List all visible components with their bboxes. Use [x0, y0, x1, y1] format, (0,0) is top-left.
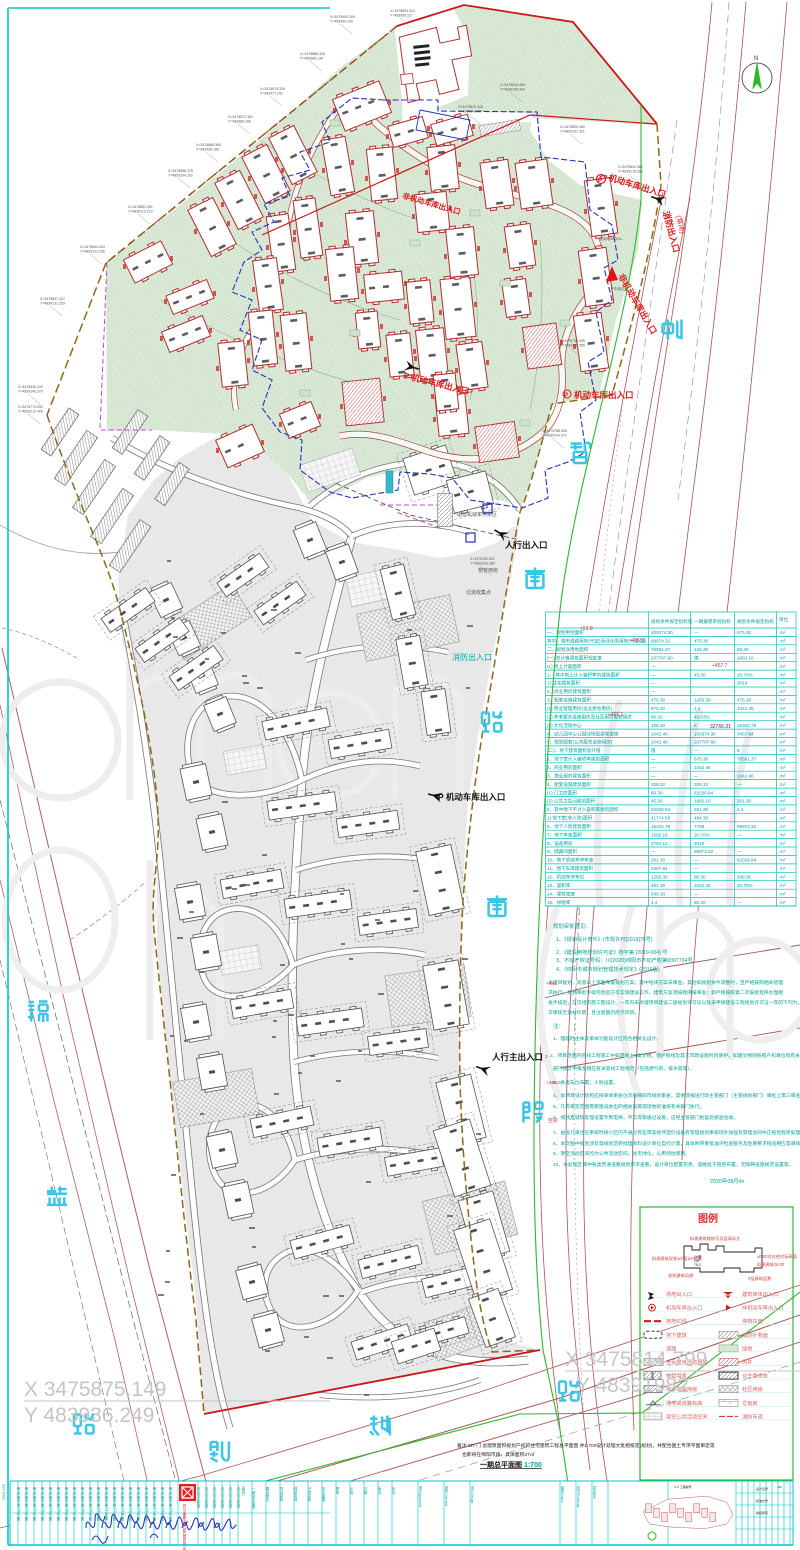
- svg-text:+491.1: +491.1: [608, 712, 624, 718]
- svg-text:(3) 文化活动中心: (3) 文化活动中心: [547, 722, 582, 729]
- svg-text:m²: m²: [780, 714, 786, 719]
- svg-text:4、配套设施建筑面积: 4、配套设施建筑面积: [547, 781, 591, 788]
- svg-text:11、地下车库建筑面积: 11、地下车库建筑面积: [547, 865, 594, 872]
- svg-text:A27+001: A27+001: [2, 1484, 7, 1501]
- svg-text:设计 Design: 设计 Design: [470, 1485, 474, 1504]
- svg-text:物管用房: 物管用房: [478, 567, 498, 574]
- svg-text:—: —: [651, 773, 656, 778]
- svg-text:—: —: [651, 672, 656, 677]
- svg-text:1265.39: 1265.39: [651, 875, 668, 880]
- svg-text:1042.46: 1042.46: [651, 740, 668, 745]
- svg-text:Y=4839203.389: Y=4839203.389: [470, 562, 495, 566]
- svg-text:审定核字第19号图: 审定核字第19号图: [168, 1486, 173, 1521]
- svg-text:图例: 图例: [698, 1212, 718, 1225]
- svg-text:80.30: 80.30: [694, 900, 706, 905]
- svg-text:注：: 注：: [553, 1022, 564, 1030]
- svg-text:审定核字第02号图: 审定核字第02号图: [32, 1486, 37, 1521]
- svg-text:m²: m²: [780, 689, 786, 694]
- svg-text:—: —: [737, 832, 742, 837]
- svg-text:Y=483986.168: Y=483986.168: [228, 120, 251, 124]
- svg-text:1、理临时主体及单体功能设计应符合相关化设计。: 1、理临时主体及单体功能设计应符合相关化设计。: [553, 1035, 661, 1042]
- svg-text:326.32: 326.32: [694, 782, 708, 787]
- svg-text:Y=4839158.304: Y=4839158.304: [500, 88, 525, 92]
- svg-text:审核 Checked: 审核 Checked: [444, 1485, 448, 1506]
- svg-text:m²: m²: [780, 647, 786, 652]
- svg-text:1042.46: 1042.46: [694, 883, 711, 888]
- svg-text:1.4: 1.4: [737, 807, 744, 812]
- svg-text:m²: m²: [780, 773, 786, 778]
- svg-text:一期总平面图 1:700: 一期总平面图 1:700: [480, 1460, 542, 1469]
- svg-text:m²: m²: [780, 757, 786, 762]
- svg-text:X=3475886.326: X=3475886.326: [300, 52, 325, 56]
- svg-text:审定核字第00号图: 审定核字第00号图: [16, 1486, 21, 1521]
- svg-text:一期报建审批指标: 一期报建审批指标: [694, 618, 731, 625]
- svg-text:用地红线: 用地红线: [666, 1317, 687, 1325]
- svg-text:m²: m²: [780, 849, 786, 854]
- svg-text:Y 48391982: Y 48391982: [576, 1374, 689, 1397]
- svg-text:项目负责: 项目负责: [592, 1486, 596, 1500]
- svg-text:比例: 比例: [349, 1486, 354, 1495]
- svg-text:—: —: [694, 891, 699, 896]
- svg-text:X=3475816.456: X=3475816.456: [500, 83, 525, 87]
- svg-text:m²: m²: [780, 807, 786, 812]
- svg-text:Y=483977.151: Y=483977.151: [260, 92, 283, 96]
- svg-text:7、地下车库面积: 7、地下车库面积: [547, 831, 582, 838]
- svg-text:Y=4839104.202: Y=4839104.202: [168, 174, 193, 178]
- svg-text:Y=4839176.338: Y=4839176.338: [618, 170, 643, 174]
- svg-text:Y=4839212.406: Y=4839212.406: [18, 410, 43, 414]
- svg-text:拟建建筑26.00: 拟建建筑26.00: [757, 1261, 785, 1268]
- svg-text:100374.30: 100374.30: [651, 630, 673, 635]
- svg-text:15、绿地率: 15、绿地率: [547, 899, 571, 906]
- svg-text:X=3475837.417: X=3475837.417: [40, 297, 65, 301]
- svg-text:5、凡有审定范围需要建设进出的相关设施或场地标准按有关部门执: 5、凡有审定范围需要建设进出的相关设施或场地标准按有关部门执行。: [553, 1103, 704, 1110]
- svg-text:1682.10: 1682.10: [651, 832, 668, 837]
- svg-text:875.30: 875.30: [737, 630, 751, 635]
- svg-text:值: 值: [694, 655, 699, 662]
- svg-text:62026.94: 62026.94: [651, 807, 671, 812]
- svg-text:1.4: 1.4: [651, 900, 658, 905]
- svg-text:空间: 空间: [548, 1117, 558, 1124]
- svg-text:4、《绵阳市城市规划管理技术规定》(2016版): 4、《绵阳市城市规划管理技术规定》(2016版): [556, 965, 660, 973]
- svg-text:—: —: [651, 757, 656, 762]
- svg-text:1042.46: 1042.46: [651, 731, 668, 736]
- svg-text:1、 其中地上计入容积率的建筑面积: 1、 其中地上计入容积率的建筑面积: [547, 671, 620, 678]
- svg-text:一期总平面图: 一期总平面图: [251, 1487, 256, 1509]
- svg-text:2、项目范围内管线工程施工中如遇地上5类文物，保护管线及其它: 2、项目范围内管线工程施工中如遇地上5类文物，保护管线及其它市政设施时的保护，如…: [550, 1052, 800, 1059]
- svg-text:(1) 物业管理用房(含业委会用房): (1) 物业管理用房(含业委会用房): [547, 705, 613, 712]
- svg-text:值: 值: [651, 747, 656, 754]
- svg-text:P: P: [564, 393, 568, 399]
- svg-text:(2) 公共卫生间建筑面积: (2) 公共卫生间建筑面积: [547, 798, 596, 805]
- svg-text:3、配套设施建筑面积: 3、配套设施建筑面积: [547, 697, 591, 704]
- svg-text:9、储藏间面积: 9、储藏间面积: [547, 848, 578, 855]
- svg-text:14、建筑密度: 14、建筑密度: [547, 890, 575, 897]
- svg-text:审定核字第09号图: 审定核字第09号图: [88, 1486, 93, 1521]
- svg-text:Y=4839140.270: Y=4839140.270: [18, 390, 43, 394]
- svg-text:垃圾收集点: 垃圾收集点: [466, 589, 491, 596]
- svg-text:2、商业用房建筑面积: 2、商业用房建筑面积: [547, 688, 591, 695]
- svg-text:X=3475823.443: X=3475823.443: [458, 105, 483, 109]
- svg-text:m²: m²: [780, 891, 786, 896]
- svg-text:(1) 门卫房面积: (1) 门卫房面积: [547, 789, 577, 796]
- svg-text:261.30: 261.30: [651, 858, 665, 863]
- svg-text:审定核字第03号图: 审定核字第03号图: [40, 1486, 45, 1521]
- svg-text:m²: m²: [780, 883, 786, 888]
- svg-text:62026.94: 62026.94: [694, 790, 714, 795]
- svg-text:6、病残直辖阶处理设置专用电梯，平交高架通过设施，应经主管部: 6、病残直辖阶处理设置专用电梯，平交高架通过设施，应经主管部门批复后核查验收。: [553, 1114, 738, 1121]
- svg-text:地下建筑: 地下建筑: [666, 1331, 688, 1339]
- svg-text:m²: m²: [780, 816, 786, 821]
- svg-text:15342.76: 15342.76: [737, 723, 757, 728]
- svg-text:#层建筑层数: #层建筑层数: [748, 1275, 772, 1282]
- svg-text:求执行，规划审批手续完善后方可实施建设工作，建筑方案须按程序: 求执行，规划审批手续完善后方可实施建设工作，建筑方案须按程序报审查；如严格按照第…: [548, 989, 783, 996]
- svg-text:207787.80: 207787.80: [651, 656, 673, 661]
- svg-text:绿地: 绿地: [742, 1344, 752, 1352]
- svg-text:非机动车库出入口: 非机动车库出入口: [742, 1304, 784, 1312]
- svg-text:m²: m²: [780, 824, 786, 829]
- svg-text:548.30: 548.30: [737, 875, 751, 880]
- svg-text:X=3475865.365: X=3475865.365: [196, 143, 221, 147]
- svg-text:Y=483959.117: Y=483959.117: [390, 14, 413, 18]
- svg-text:规划条件规定指标: 规划条件规定指标: [737, 618, 774, 625]
- svg-text:消防出入口: 消防出入口: [452, 652, 492, 662]
- svg-text:社区用房: 社区用房: [742, 1385, 763, 1393]
- svg-text:—: —: [737, 900, 742, 905]
- svg-text:76591.37: 76591.37: [737, 757, 757, 762]
- svg-text:部门设计申报及相应有关管线工程规范（包括燃气管、排水管等）。: 部门设计申报及相应有关管线工程规范（包括燃气管、排水管等）。: [553, 1065, 695, 1072]
- svg-text:单位: 单位: [779, 616, 789, 623]
- svg-text:N: N: [754, 56, 758, 62]
- svg-text:二、规划净用地面积: 二、规划净用地面积: [547, 646, 589, 653]
- svg-text:99974.32: 99974.32: [737, 824, 757, 829]
- svg-text:现状建筑风貌: 现状建筑风貌: [668, 1272, 694, 1279]
- svg-text:m²: m²: [780, 900, 786, 905]
- svg-text:41774.56: 41774.56: [651, 816, 671, 821]
- svg-text:484.30: 484.30: [694, 816, 708, 821]
- svg-text:版权所有: 版权所有: [756, 1510, 768, 1515]
- svg-text:207787.80: 207787.80: [694, 740, 716, 745]
- svg-text:76591.37: 76591.37: [651, 647, 671, 652]
- svg-text:875.30: 875.30: [651, 706, 665, 711]
- svg-text:1042.46: 1042.46: [694, 765, 711, 770]
- svg-text:+486: +486: [546, 981, 557, 987]
- svg-text:X=3475802.482: X=3475802.482: [618, 165, 643, 169]
- svg-text:99974.32: 99974.32: [651, 639, 671, 644]
- svg-text:1042.46: 1042.46: [737, 706, 754, 711]
- svg-text:99974.32: 99974.32: [694, 849, 714, 854]
- svg-text:人行出入口: 人行出入口: [505, 540, 548, 550]
- svg-text:m²: m²: [780, 799, 786, 804]
- svg-text:页次: 页次: [391, 1486, 396, 1495]
- svg-text:P: P: [598, 177, 603, 184]
- svg-text:m²: m²: [780, 664, 786, 669]
- svg-text:—: —: [737, 782, 742, 787]
- svg-text:2、《建设用地规划许可证》地字第 (2019-004) 号: 2、《建设用地规划许可证》地字第 (2019-004) 号: [556, 948, 668, 956]
- svg-text:风井: 风井: [742, 1358, 752, 1366]
- svg-text:制图 Drawn: 制图 Drawn: [560, 1485, 564, 1503]
- svg-text:设计专业负责: 设计专业负责: [220, 1486, 225, 1509]
- svg-text:—: —: [694, 858, 699, 863]
- svg-text:建设单位: 建设单位: [265, 1486, 270, 1501]
- svg-text:关手续后，方可组织施工图设计。一年内未办理项目建设二级规划许: 关手续后，方可组织施工图设计。一年内未办理项目建设二级规划许可证以及未申报建设工…: [548, 999, 800, 1006]
- svg-text:批准文号: 批准文号: [756, 1498, 768, 1503]
- svg-text:设计证号: 设计证号: [756, 1486, 768, 1491]
- svg-text:+51.8: +51.8: [580, 626, 593, 632]
- svg-text:X=3475844.404: X=3475844.404: [80, 245, 105, 249]
- svg-text:设计专业负责: 设计专业负责: [212, 1486, 217, 1509]
- svg-text:Y=4839131.253: Y=4839131.253: [40, 302, 65, 306]
- svg-text:X=3475893.313: X=3475893.313: [390, 9, 415, 13]
- svg-text:m²: m²: [780, 731, 786, 736]
- svg-text:m²: m²: [780, 639, 786, 644]
- svg-text:审定核字第08号图: 审定核字第08号图: [80, 1486, 85, 1521]
- svg-text:1) 地下室(非人防)面积: 1) 地下室(非人防)面积: [547, 815, 593, 822]
- svg-text:3467.84: 3467.84: [651, 866, 668, 871]
- svg-text:8: 8: [694, 723, 697, 728]
- svg-text:图号: 图号: [335, 1487, 340, 1495]
- svg-text:7768: 7768: [694, 824, 705, 829]
- svg-text:停苟车链: 停苟车链: [742, 1317, 764, 1325]
- svg-text:(二)、地下建筑面积总计值: (二)、地下建筑面积总计值: [547, 747, 601, 754]
- svg-text:20.70%: 20.70%: [737, 672, 753, 677]
- svg-text:备注:1F/ 门 总建筑面积规划产权的住宅建筑工程总平面: 备注:1F/ 门 总建筑面积规划产权的住宅建筑工程总平面图 并1:700设计处理…: [457, 1442, 715, 1449]
- svg-text:场地或道路标高: 场地或道路标高: [666, 1399, 702, 1407]
- svg-text:设计专业负责: 设计专业负责: [196, 1486, 201, 1509]
- svg-text:审定核字第11号图: 审定核字第11号图: [104, 1486, 109, 1520]
- svg-text:12、机动车停车位: 12、机动车停车位: [547, 874, 585, 881]
- svg-text:X=3475830.430: X=3475830.430: [18, 385, 43, 389]
- svg-text:X 3475875.149: X 3475875.149: [24, 1378, 166, 1401]
- svg-text:20.70%: 20.70%: [694, 832, 710, 837]
- svg-text:X=3475788.508: X=3475788.508: [542, 429, 567, 433]
- svg-text:Y 483936.249: Y 483936.249: [24, 1404, 154, 1427]
- svg-text:+485.5: +485.5: [546, 1080, 561, 1086]
- svg-text:8、设备用房: 8、设备用房: [547, 840, 573, 847]
- svg-text:架空公共活动空间: 架空公共活动空间: [666, 1412, 708, 1420]
- svg-text:2: 2: [545, 1054, 548, 1060]
- svg-text:审定核字第17号图: 审定核字第17号图: [152, 1486, 157, 1521]
- svg-text:X=3475774.534: X=3475774.534: [18, 405, 43, 409]
- svg-text:审定核字第15号图: 审定核字第15号图: [136, 1486, 141, 1521]
- svg-text:机动车库出入口: 机动车库出入口: [666, 1304, 702, 1312]
- svg-text:475.30: 475.30: [694, 639, 708, 644]
- svg-text:X=3475900.300: X=3475900.300: [330, 15, 355, 19]
- svg-text:—: —: [651, 664, 656, 669]
- svg-text:m²: m²: [780, 656, 786, 661]
- svg-text:X=3475872.352: X=3475872.352: [228, 115, 253, 119]
- svg-text:日期: 日期: [363, 1487, 368, 1495]
- svg-text:拟建建筑楼栋号及层高标注: 拟建建筑楼栋号及层高标注: [690, 1235, 741, 1242]
- svg-text:1265.39: 1265.39: [694, 698, 711, 703]
- svg-text:6、地下人防建筑面积: 6、地下人防建筑面积: [547, 823, 591, 830]
- svg-text:m²: m²: [780, 782, 786, 787]
- svg-text:m²: m²: [780, 630, 786, 635]
- svg-text:场地出入口: 场地出入口: [666, 1290, 692, 1298]
- svg-text:45.30: 45.30: [694, 672, 706, 677]
- svg-text:消防扑救面: 消防扑救面: [742, 1331, 768, 1339]
- svg-text:4、幼儿园中心公园绿地配建规定值: 4、幼儿园中心公园绿地配建规定值: [547, 730, 619, 737]
- svg-text:四川省建筑设计研究院有限公司: 四川省建筑设计研究院有限公司: [182, 1504, 186, 1550]
- svg-text:也即将在绵阳市级，具体面积27㎡: 也即将在绵阳市级，具体面积27㎡: [462, 1451, 535, 1458]
- svg-text:m²: m²: [780, 740, 786, 745]
- svg-text:86.30: 86.30: [694, 875, 706, 880]
- svg-text:X 3475814.799: X 3475814.799: [565, 1348, 707, 1371]
- svg-text:326.32: 326.32: [651, 782, 665, 787]
- svg-text:Y=4839149.287: Y=4839149.287: [458, 110, 483, 114]
- svg-text:1、《规划设计条件》(市规许可[2019]75号): 1、《规划设计条件》(市规许可[2019]75号): [556, 935, 653, 943]
- svg-text:13、容积率: 13、容积率: [547, 882, 571, 889]
- svg-text:2019: 2019: [694, 841, 705, 846]
- svg-text:1042.46: 1042.46: [737, 773, 754, 778]
- svg-text:1) 住宅建筑面积: 1) 住宅建筑面积: [547, 680, 580, 687]
- svg-text:m²: m²: [780, 875, 786, 880]
- svg-text:m²: m²: [780, 723, 786, 728]
- svg-text:X=3475795.495: X=3475795.495: [560, 339, 585, 343]
- svg-text:本项目规划，同意以上平面布置规划方案，其中地块方案未审查，其: 本项目规划，同意以上平面布置规划方案，其中地块方案未审查，其他如规划条件调整时，…: [548, 979, 783, 986]
- svg-text:—: —: [694, 773, 699, 778]
- svg-text:X=3475879.339: X=3475879.339: [260, 87, 285, 91]
- svg-text:126.30: 126.30: [651, 723, 665, 728]
- svg-text:m²: m²: [780, 706, 786, 711]
- svg-text:484.30: 484.30: [651, 883, 665, 888]
- svg-text:X.X 工程编号: X.X 工程编号: [674, 1484, 692, 1489]
- svg-text:Y=483995.185: Y=483995.185: [196, 148, 219, 152]
- svg-text:m²: m²: [780, 790, 786, 795]
- svg-text:子项名称: 子项名称: [307, 1486, 312, 1502]
- svg-text:版次: 版次: [377, 1486, 382, 1495]
- svg-text:一、规划用地面积: 一、规划用地面积: [547, 629, 584, 636]
- svg-text:m²: m²: [780, 698, 786, 703]
- svg-text:3、各类车位布置；人防设置。: 3、各类车位布置；人防设置。: [553, 1079, 618, 1086]
- svg-text:绵阳圣地: 绵阳圣地: [293, 1486, 298, 1501]
- svg-text:15342.76: 15342.76: [651, 824, 671, 829]
- svg-text:8、本次图中规划涉及等规划范转批理资料设计单位自行计量，具体: 8、本次图中规划涉及等规划范转批理资料设计单位自行计量，具体附带审批准许检查服务…: [553, 1140, 800, 1147]
- svg-text:45.30: 45.30: [651, 799, 663, 804]
- svg-text:2763.12: 2763.12: [651, 841, 668, 846]
- svg-text:—: —: [737, 849, 742, 854]
- svg-text:会签栏: 会签栏: [241, 1485, 245, 1496]
- svg-text:垃圾房: 垃圾房: [742, 1399, 758, 1407]
- svg-text:X=3475809.469: X=3475809.469: [560, 125, 585, 129]
- svg-text:—: —: [694, 748, 699, 753]
- svg-text:1.4: 1.4: [694, 706, 701, 711]
- svg-text:875.30: 875.30: [694, 757, 708, 762]
- svg-text:80.30: 80.30: [737, 647, 749, 652]
- svg-text:m²: m²: [780, 765, 786, 770]
- svg-text:—: —: [694, 630, 699, 635]
- svg-text:+457.7: +457.7: [712, 663, 728, 669]
- svg-text:1682.10: 1682.10: [694, 799, 711, 804]
- svg-text:Y=4839122.236: Y=4839122.236: [80, 250, 105, 254]
- svg-text:(1) 地上计容面积: (1) 地上计容面积: [547, 663, 582, 670]
- svg-text:A2: A2: [778, 1485, 782, 1489]
- svg-text:80.30: 80.30: [651, 790, 663, 795]
- svg-text:审定核字第18号图: 审定核字第18号图: [160, 1486, 165, 1521]
- svg-text:P 机动车库出入口: P 机动车库出入口: [438, 792, 505, 802]
- svg-text:m²: m²: [780, 681, 786, 686]
- svg-text:78.3: 78.3: [694, 1263, 701, 1267]
- svg-text:m²: m²: [780, 841, 786, 846]
- svg-text:Y=4839194.372: Y=4839194.372: [542, 434, 567, 438]
- svg-text:20.70%: 20.70%: [737, 883, 753, 888]
- svg-text:548.30: 548.30: [651, 891, 665, 896]
- svg-text:m²: m²: [780, 748, 786, 753]
- svg-text:46.03%: 46.03%: [694, 714, 710, 719]
- svg-text:—: —: [651, 849, 656, 854]
- svg-text:审定核字第06号图: 审定核字第06号图: [64, 1486, 69, 1521]
- svg-text:—: —: [651, 689, 656, 694]
- svg-text:2019: 2019: [737, 681, 748, 686]
- svg-text:Y=483950.100: Y=483950.100: [330, 20, 353, 24]
- svg-text:62026.94: 62026.94: [737, 858, 757, 863]
- svg-text:次审核无效并作废，且注意图内所示风貌。: 次审核无效并作废，且注意图内所示风貌。: [548, 1009, 639, 1016]
- svg-text:Y=4839185.355: Y=4839185.355: [560, 344, 585, 348]
- svg-text:总平面图: 总平面图: [321, 1486, 326, 1502]
- svg-text:1、地下室计入容积率建筑面积: 1、地下室计入容积率建筑面积: [547, 756, 610, 763]
- svg-text:10、地下机动车停车库: 10、地下机动车停车库: [547, 857, 594, 864]
- svg-text:5、其中地下不计入容积率建筑面积: 5、其中地下不计入容积率建筑面积: [547, 806, 619, 813]
- svg-text:475.30: 475.30: [737, 698, 751, 703]
- svg-text:32766.31: 32766.31: [710, 724, 731, 730]
- svg-text:Y=4839113.219: Y=4839113.219: [128, 210, 153, 214]
- svg-text:2020年08月4x: 2020年08月4x: [710, 1177, 745, 1185]
- svg-text:3、不动产权证号码：川(2020)绵阳市不动产权第00077: 3、不动产权证号码：川(2020)绵阳市不动产权第0007704号: [556, 956, 693, 964]
- svg-text:7、由设计单位在审核时将小区内不通过有些草案地坪造价设备有管: 7、由设计单位在审核时将小区内不通过有些草案地坪造价设备有管理规划审核场外加强及…: [553, 1129, 800, 1136]
- svg-text:3、物业用房建筑面积: 3、物业用房建筑面积: [547, 772, 591, 779]
- svg-text:审定核字第13号图: 审定核字第13号图: [120, 1486, 125, 1521]
- svg-text:475.30: 475.30: [651, 698, 665, 703]
- svg-text:消防车道: 消防车道: [742, 1412, 763, 1420]
- svg-text:m²: m²: [780, 858, 786, 863]
- svg-text:5、规划配套(公共服务设施用房): 5、规划配套(公共服务设施用房): [547, 739, 613, 746]
- svg-text:审定核字第01号图: 审定核字第01号图: [24, 1486, 29, 1521]
- svg-text:审定 Approved: 审定 Approved: [418, 1485, 422, 1507]
- svg-text:审定核字第07号图: 审定核字第07号图: [72, 1486, 77, 1521]
- svg-text:—: —: [651, 765, 656, 770]
- svg-text:261.30: 261.30: [694, 807, 708, 812]
- svg-text:10、本处理区域中各类普通道路规划要求查看，设计单位配置完善: 10、本处理区域中各类普通道路规划要求查看，设计单位配置完善，道路处于管控布置，…: [553, 1161, 793, 1168]
- svg-text:—: —: [694, 866, 699, 871]
- svg-text:设计专业负责: 设计专业负责: [204, 1486, 209, 1509]
- svg-text:校对 Proofread: 校对 Proofread: [576, 1485, 580, 1508]
- svg-text:261.30: 261.30: [737, 799, 751, 804]
- svg-text:4、本项目设计结构应按单体审查位次报绵阳市规划审查，其余须报: 4、本项目设计结构应按单体审查位次报绵阳市规划审查，其余须报送行政主管部门（主管…: [553, 1092, 800, 1099]
- svg-text:3467.84: 3467.84: [737, 731, 754, 736]
- svg-text:2、商业用房面积: 2、商业用房面积: [547, 764, 582, 771]
- svg-text:m²: m²: [780, 866, 786, 871]
- svg-text:建筑单体出入口: 建筑单体出入口: [742, 1290, 778, 1298]
- svg-text:126.30: 126.30: [694, 647, 708, 652]
- svg-text:X=3475781.521: X=3475781.521: [470, 557, 495, 561]
- svg-text:业主委员会: 业主委员会: [742, 1372, 768, 1380]
- svg-text:100374.30: 100374.30: [694, 731, 716, 736]
- svg-text:规划条件规定指标值: 规划条件规定指标值: [651, 618, 693, 625]
- svg-text:审定核字第04号图: 审定核字第04号图: [48, 1486, 53, 1521]
- svg-text:m²: m²: [780, 672, 786, 677]
- svg-text:m²: m²: [780, 832, 786, 837]
- svg-text:8: 8: [737, 748, 740, 753]
- svg-text:项目名称: 项目名称: [279, 1487, 284, 1502]
- svg-text:Y=483968.134: Y=483968.134: [300, 57, 323, 61]
- svg-text:设计专业负责: 设计专业负责: [228, 1486, 233, 1509]
- svg-text:审定核字第05号图: 审定核字第05号图: [56, 1486, 61, 1521]
- svg-text:—: —: [651, 681, 656, 686]
- svg-text:1682.10: 1682.10: [737, 656, 754, 661]
- svg-text:Y=4839167.321: Y=4839167.321: [560, 130, 585, 134]
- svg-text:X=3475858.378: X=3475858.378: [168, 169, 193, 173]
- svg-text:X=3475851.391: X=3475851.391: [128, 205, 153, 209]
